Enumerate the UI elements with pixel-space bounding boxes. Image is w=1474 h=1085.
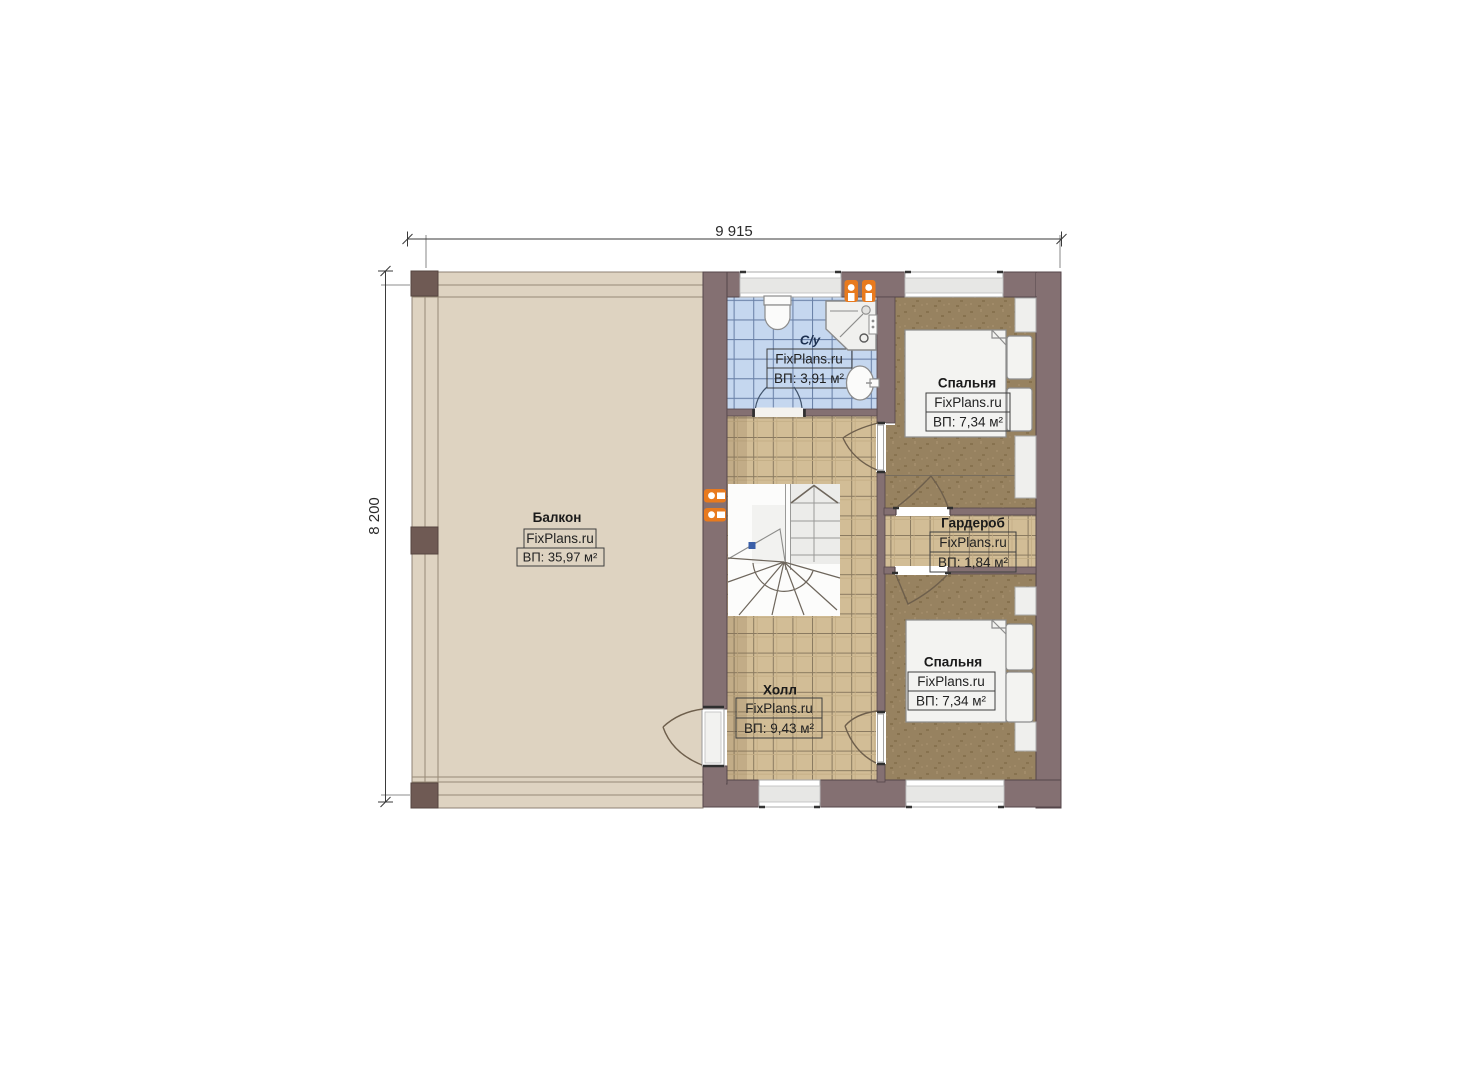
svg-text:ВП: 3,91 м²: ВП: 3,91 м²	[774, 371, 845, 386]
svg-text:9 915: 9 915	[715, 223, 753, 240]
svg-text:ВП: 7,34 м²: ВП: 7,34 м²	[916, 694, 987, 709]
svg-text:FixPlans.ru: FixPlans.ru	[934, 395, 1002, 410]
svg-text:FixPlans.ru: FixPlans.ru	[917, 674, 985, 689]
svg-text:Гардероб: Гардероб	[941, 516, 1005, 531]
svg-text:FixPlans.ru: FixPlans.ru	[939, 535, 1007, 550]
svg-text:ВП: 1,84 м²: ВП: 1,84 м²	[938, 555, 1009, 570]
svg-text:Холл: Холл	[763, 683, 797, 698]
svg-text:FixPlans.ru: FixPlans.ru	[775, 352, 843, 367]
svg-text:Спальня: Спальня	[938, 376, 996, 391]
svg-text:С/у: С/у	[800, 333, 821, 348]
svg-text:8 200: 8 200	[366, 497, 383, 535]
svg-text:ВП: 35,97 м²: ВП: 35,97 м²	[523, 550, 598, 565]
svg-text:FixPlans.ru: FixPlans.ru	[526, 531, 594, 546]
svg-text:Спальня: Спальня	[924, 655, 982, 670]
svg-text:FixPlans.ru: FixPlans.ru	[745, 701, 813, 716]
svg-text:ВП: 7,34 м²: ВП: 7,34 м²	[933, 415, 1004, 430]
svg-text:Балкон: Балкон	[533, 510, 582, 525]
svg-text:ВП: 9,43 м²: ВП: 9,43 м²	[744, 721, 815, 736]
